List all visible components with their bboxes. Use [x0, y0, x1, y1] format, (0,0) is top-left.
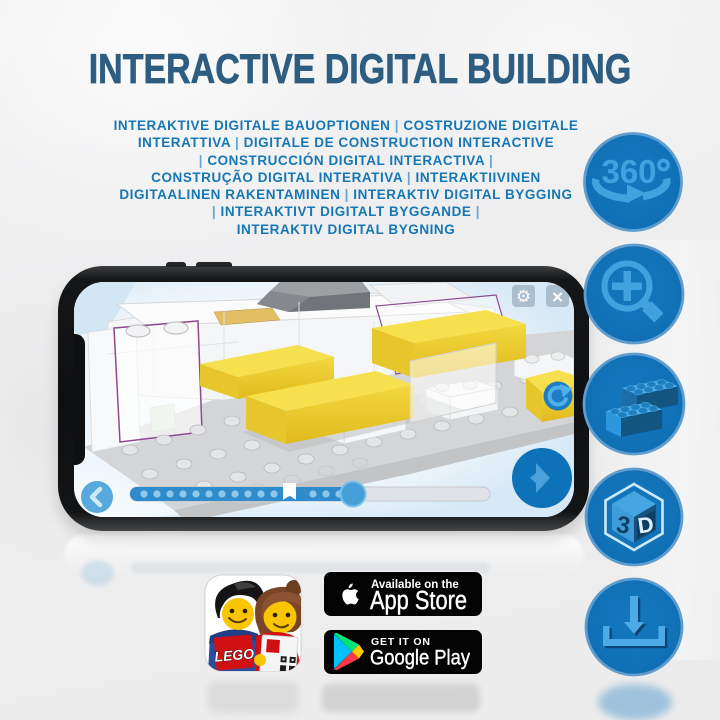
svg-text:⚙: ⚙	[516, 287, 531, 306]
svg-text:App Store: App Store	[370, 587, 467, 615]
svg-text:Google Play: Google Play	[370, 647, 470, 670]
svg-text:360: 360	[601, 153, 656, 190]
svg-text:✕: ✕	[551, 290, 564, 307]
